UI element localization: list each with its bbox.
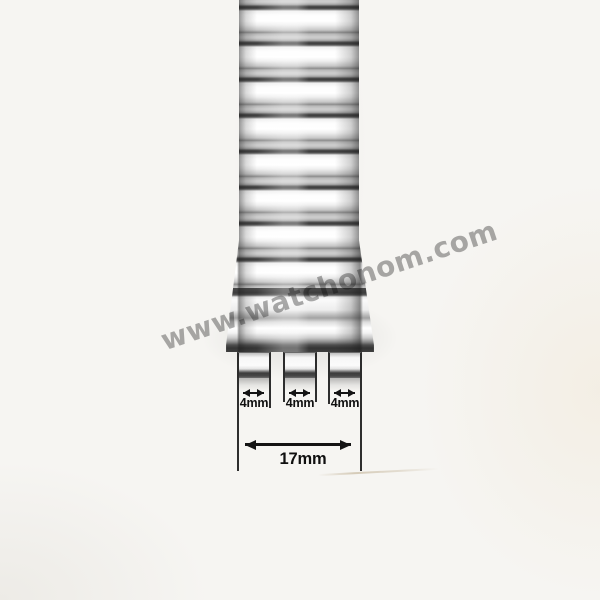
dimension-arrow-center-prong-icon — [289, 392, 310, 394]
scratch-mark — [318, 468, 438, 476]
extension-line-center-prong-right — [315, 378, 317, 402]
extension-line-outer-left — [237, 378, 239, 471]
band-edge-shading — [225, 0, 375, 352]
prong-right — [328, 352, 362, 378]
watch-band — [225, 0, 375, 352]
dimension-arrow-total-width-icon — [245, 443, 351, 446]
dimension-arrow-left-prong-icon — [243, 392, 264, 394]
prong-center — [283, 352, 317, 378]
extension-line-right-prong-left — [328, 378, 330, 404]
extension-line-outer-right — [360, 378, 362, 471]
extension-line-left-prong-right — [269, 378, 271, 408]
prong-width-label-center: 4mm — [286, 397, 315, 410]
dimension-arrow-right-prong-icon — [334, 392, 355, 394]
product-photo: www.watchonom.com 4mm 4mm 4mm 17mm — [0, 0, 600, 600]
prong-width-label-left: 4mm — [240, 397, 269, 410]
total-width-label: 17mm — [280, 451, 327, 468]
extension-line-center-prong-left — [283, 378, 285, 402]
prong-width-label-right: 4mm — [331, 397, 360, 410]
prong-left — [237, 352, 271, 378]
